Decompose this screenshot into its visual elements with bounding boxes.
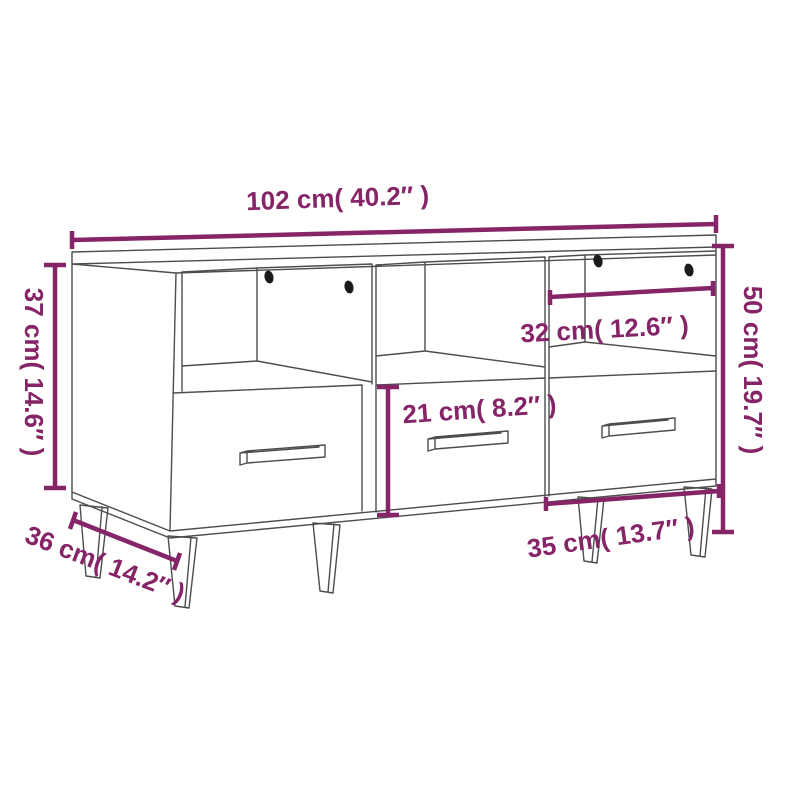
cable-hole [683, 263, 695, 278]
drawer-fronts [173, 371, 716, 512]
dimension-drawer-width: 35 cm( 13.7″ ) [525, 484, 719, 564]
product-dimension-diagram: 102 cm( 40.2″ ) 37 cm( 14.6″ ) 50 cm( 19… [0, 0, 800, 800]
drawer-handle-middle [428, 431, 508, 451]
cable-hole [343, 280, 355, 295]
dimension-label: 50 cm( 19.7″ ) [738, 286, 768, 455]
leg-mid-left [313, 523, 340, 593]
dimension-line [550, 281, 713, 305]
drawer-handle-left [240, 445, 325, 465]
dimension-line [377, 387, 399, 515]
dimension-drawer-height: 21 cm( 8.2″ ) [377, 387, 557, 515]
diagram-canvas: 102 cm( 40.2″ ) 37 cm( 14.6″ ) 50 cm( 19… [0, 0, 800, 800]
dimension-overall-width: 102 cm( 40.2″ ) [72, 180, 716, 249]
dimension-label: 37 cm( 14.6″ ) [19, 288, 49, 457]
dimension-label: 102 cm( 40.2″ ) [246, 180, 430, 216]
dimension-label: 35 cm( 13.7″ ) [525, 511, 696, 564]
drawer-handle-right [602, 418, 675, 438]
dimension-upper-section-height: 37 cm( 14.6″ ) [19, 265, 66, 488]
dimension-label: 21 cm( 8.2″ ) [401, 389, 557, 430]
cable-hole [263, 270, 275, 285]
cable-hole [592, 254, 604, 269]
